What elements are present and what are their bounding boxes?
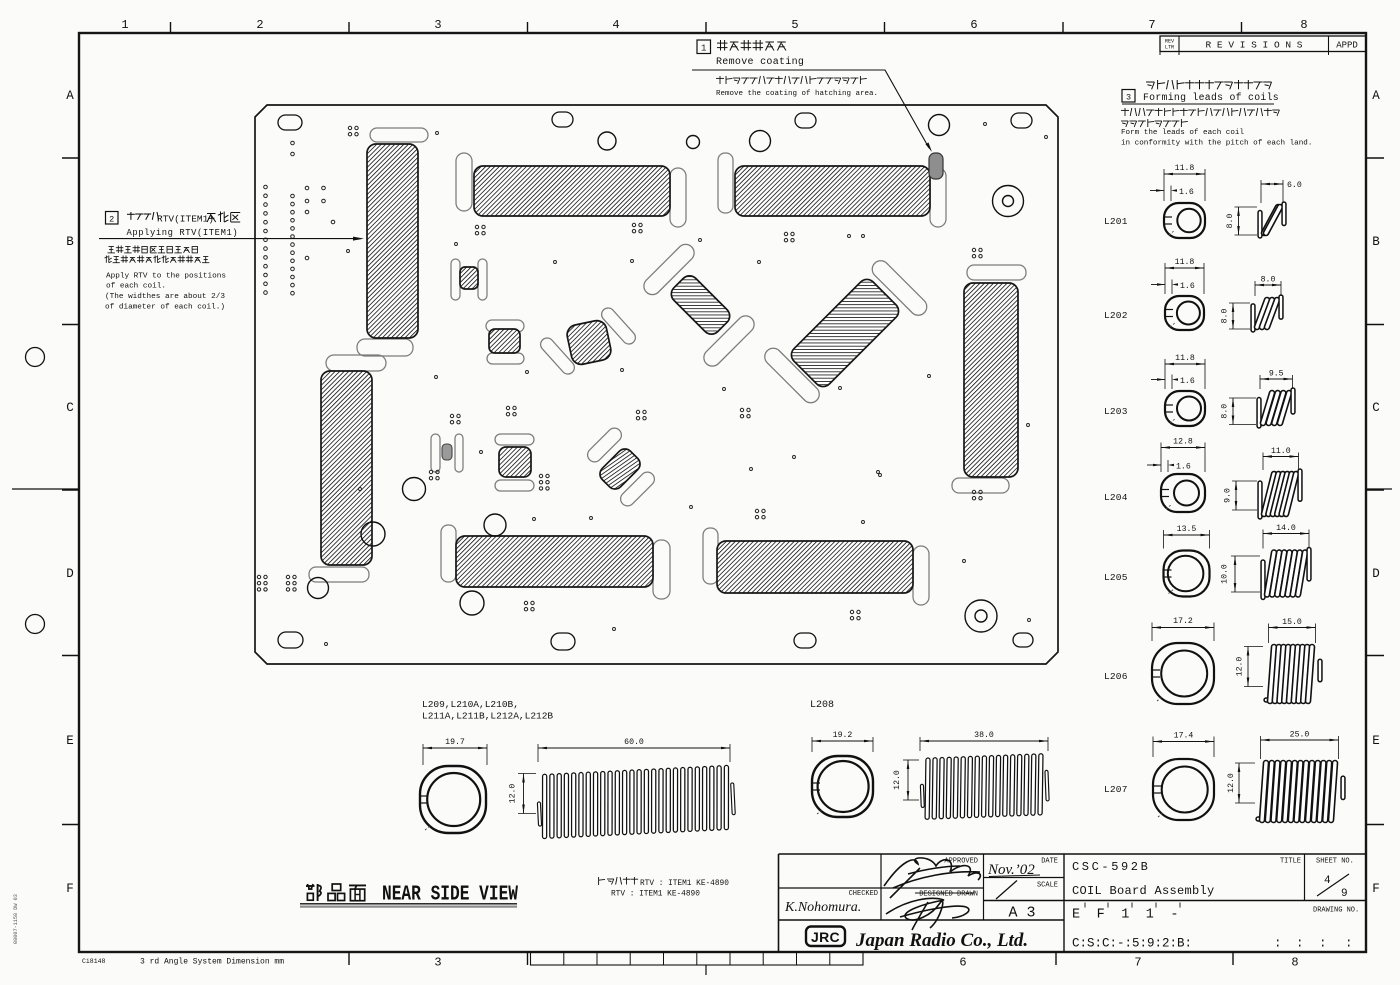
svg-text:6: 6 [970,18,977,32]
svg-text:APPD: APPD [1336,41,1358,51]
svg-text:9: 9 [1341,888,1348,900]
svg-text:8.0: 8.0 [1261,276,1276,285]
svg-text:2: 2 [256,18,263,32]
svg-text:L206: L206 [1104,671,1128,682]
svg-text:A: A [1372,89,1380,103]
svg-text:4: 4 [612,18,619,32]
svg-text:K.Nohomura.: K.Nohomura. [784,900,861,915]
svg-text:L209,L210A,L210B,: L209,L210A,L210B, [422,699,519,710]
svg-text:RTV(ITEM1): RTV(ITEM1) [157,214,214,225]
svg-text:3: 3 [434,18,441,32]
svg-text:13.5: 13.5 [1177,525,1197,534]
svg-text:CSC-592B: CSC-592B [1072,860,1150,874]
svg-text:3 rd Angle System Dimension m: 3 rd Angle System Dimension mm [140,958,284,967]
svg-text:L205: L205 [1104,572,1128,583]
svg-text:1.6: 1.6 [1176,462,1191,471]
svg-text:TITLE: TITLE [1280,858,1301,866]
svg-text:7: 7 [1134,956,1141,970]
svg-text:25.0: 25.0 [1290,731,1310,740]
svg-text:DESIGNED DRAWN: DESIGNED DRAWN [919,891,978,899]
svg-text:B: B [66,235,74,249]
svg-text:8.0: 8.0 [1221,309,1230,324]
svg-text:Remove the coating of hatching: Remove the coating of hatching area. [716,90,878,98]
svg-text:Japan Radio Co., Ltd.: Japan Radio Co., Ltd. [855,930,1028,951]
svg-text::: : [1274,937,1282,951]
svg-text:RTV : ITEM1 KE-4890: RTV : ITEM1 KE-4890 [611,891,700,899]
svg-text:F: F [1372,882,1380,896]
svg-text:60.0: 60.0 [624,738,644,747]
svg-text:19.7: 19.7 [445,738,465,747]
svg-text:R E V I S I O N S: R E V I S I O N S [1206,40,1303,51]
svg-text:Form the leads of each coil: Form the leads of each coil [1121,129,1244,137]
svg-text:D: D [1372,567,1380,581]
svg-text:3: 3 [1126,92,1131,102]
svg-text:E F 1 1 -: E F 1 1 - [1072,908,1183,923]
svg-text::: : [1296,937,1304,951]
svg-text:10.0: 10.0 [1221,564,1230,584]
svg-text:7: 7 [1148,18,1155,32]
svg-text:08007-1158 DW 03: 08007-1158 DW 03 [13,894,19,944]
svg-text:of diameter of each coil.): of diameter of each coil.) [105,304,225,312]
svg-text:Applying RTV(ITEM1): Applying RTV(ITEM1) [127,228,239,238]
svg-text::: : [1319,937,1327,951]
svg-text:19.2: 19.2 [833,731,853,740]
svg-text:12.0: 12.0 [509,784,518,804]
svg-text:A 3: A 3 [1008,905,1035,922]
svg-text:1.6: 1.6 [1180,377,1195,386]
svg-text:12.8: 12.8 [1173,438,1193,447]
svg-text:SHEET NO.: SHEET NO. [1316,858,1354,866]
svg-text:DATE: DATE [1041,858,1058,866]
svg-text:8.0: 8.0 [1221,404,1230,419]
svg-text:E: E [66,734,74,748]
svg-text:Apply RTV to the positions: Apply RTV to the positions [106,273,226,281]
svg-text:RTV : ITEM1 KE-4890: RTV : ITEM1 KE-4890 [640,880,729,888]
svg-text:6: 6 [959,956,966,970]
svg-text:9.0: 9.0 [1224,488,1233,503]
svg-text:L208: L208 [810,700,834,711]
svg-text:11.0: 11.0 [1271,447,1291,456]
svg-text:11.8: 11.8 [1175,164,1195,173]
svg-text:D: D [66,567,74,581]
svg-text:17.2: 17.2 [1173,617,1193,626]
svg-text:of each coil.: of each coil. [106,283,166,291]
svg-text:8.0: 8.0 [1226,214,1235,229]
svg-text:in conformity with the pitch o: in conformity with the pitch of each lan… [1121,140,1312,148]
svg-text:COIL Board Assembly: COIL Board Assembly [1072,884,1215,898]
svg-text:8: 8 [1300,18,1307,32]
svg-text:C:S:C:-:5:9:2:B:: C:S:C:-:5:9:2:B: [1072,937,1192,951]
svg-text:C: C [66,401,74,415]
svg-text:L203: L203 [1104,406,1128,417]
svg-text:E: E [1372,734,1380,748]
svg-text:1.6: 1.6 [1180,282,1195,291]
svg-text:2: 2 [109,214,114,224]
svg-text:1.6: 1.6 [1179,188,1194,197]
svg-text:F: F [66,882,74,896]
svg-text:LTR: LTR [1165,45,1174,51]
svg-text:38.0: 38.0 [974,731,994,740]
svg-text:12.0: 12.0 [893,770,902,790]
svg-text:NEAR SIDE VIEW: NEAR SIDE VIEW [382,884,518,907]
svg-text:DRAWING NO.: DRAWING NO. [1313,907,1359,915]
svg-text:JRC: JRC [811,929,840,945]
svg-text:SCALE: SCALE [1037,882,1058,890]
svg-text:12.0: 12.0 [1236,657,1245,677]
svg-text:12.0: 12.0 [1227,773,1236,793]
svg-text:Ci8148: Ci8148 [82,958,106,965]
svg-text:8: 8 [1291,956,1298,970]
svg-text:11.8: 11.8 [1175,258,1195,267]
svg-text::: : [1345,937,1353,951]
svg-text:(The widthes are about 2/3: (The widthes are about 2/3 [105,293,225,301]
svg-text:1: 1 [701,44,706,54]
svg-text:L204: L204 [1104,492,1128,503]
svg-text:A: A [66,89,74,103]
svg-text:CHECKED: CHECKED [849,890,878,898]
svg-text:6.0: 6.0 [1287,181,1302,190]
svg-text:9.5: 9.5 [1269,370,1284,379]
svg-text:4: 4 [1324,875,1331,887]
svg-text:1: 1 [121,18,128,32]
svg-text:3: 3 [434,956,441,970]
svg-text:5: 5 [791,18,798,32]
svg-text:17.4: 17.4 [1174,732,1194,741]
svg-text:Forming leads of coils: Forming leads of coils [1143,92,1279,103]
svg-text:L201: L201 [1104,216,1128,227]
svg-text:11.8: 11.8 [1175,354,1195,363]
svg-text:Remove coating: Remove coating [716,56,804,68]
svg-text:14.0: 14.0 [1276,524,1296,533]
svg-text:B: B [1372,235,1380,249]
svg-text:15.0: 15.0 [1282,618,1302,627]
svg-text:C: C [1372,401,1380,415]
svg-text:L207: L207 [1104,784,1128,795]
svg-text:L211A,L211B,L212A,L212B: L211A,L211B,L212A,L212B [422,711,553,722]
svg-text:L202: L202 [1104,310,1128,321]
